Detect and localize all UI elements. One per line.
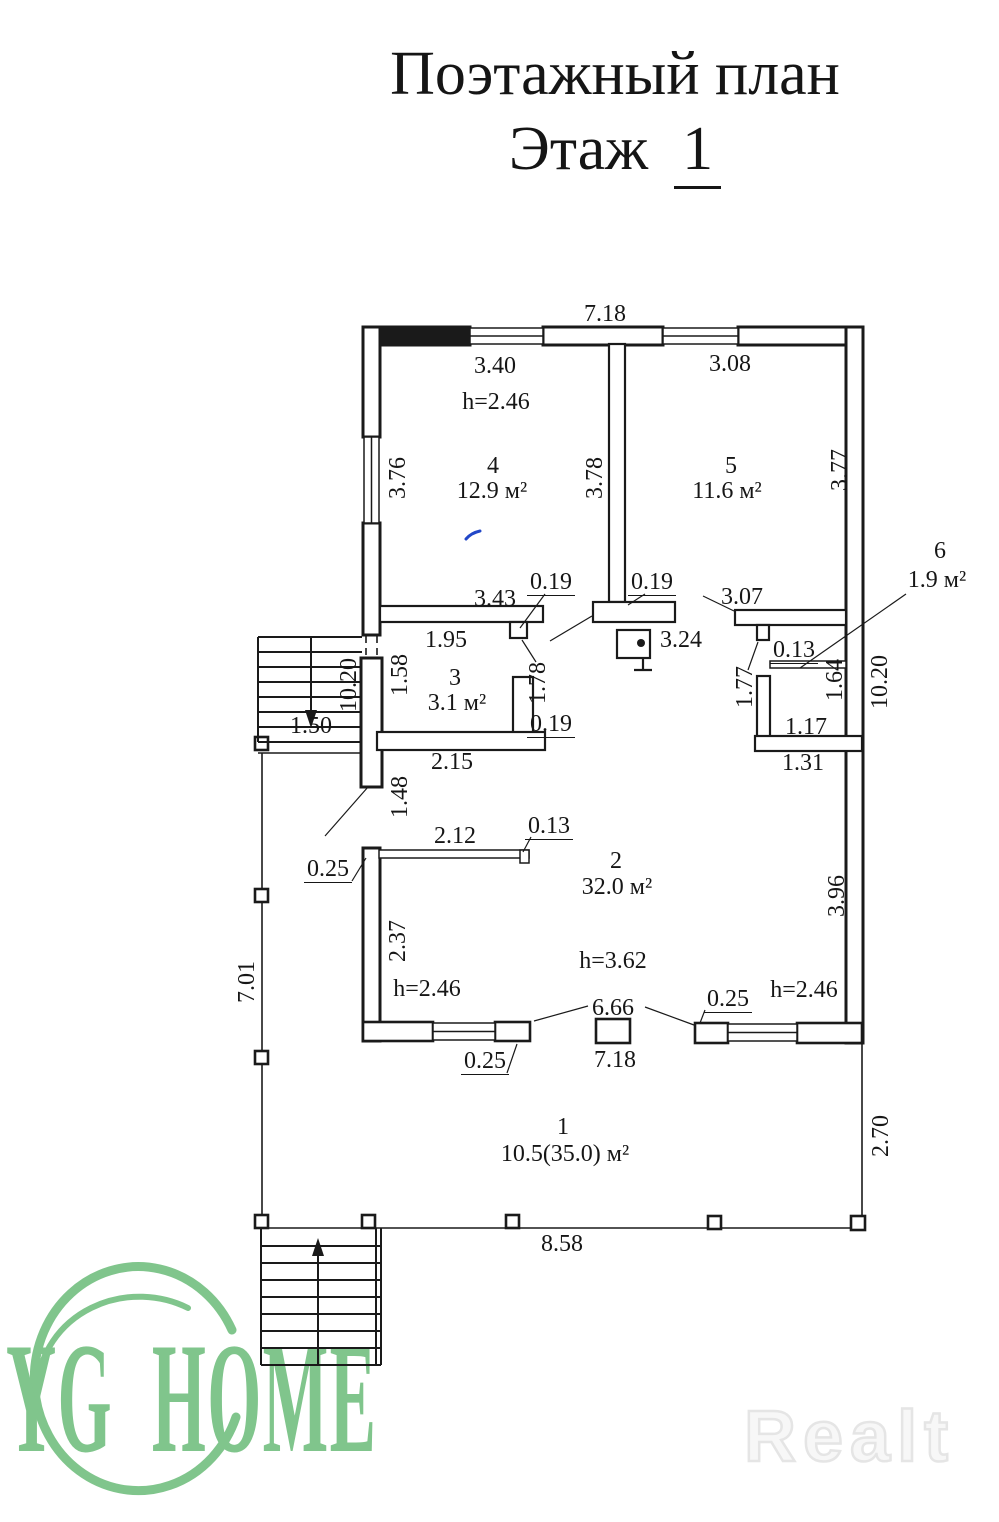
- dimension-label: 3.78: [583, 457, 607, 499]
- dimension-label: 3.24: [660, 628, 702, 652]
- dimension-label: 2.70: [869, 1115, 893, 1157]
- room-5-area: 11.6 м²: [692, 479, 762, 503]
- dimension-label: 6.66: [592, 996, 634, 1020]
- room-1-area: 10.5(35.0) м²: [501, 1142, 629, 1166]
- dimension-label: 1.48: [388, 776, 412, 818]
- dimension-label: 2.37: [386, 920, 410, 962]
- dimension-label: 0.19: [527, 570, 575, 596]
- room-3-number: 3: [449, 666, 461, 690]
- ceiling-height-room2-right: h=2.46: [770, 978, 838, 1002]
- dimension-label: 1.31: [782, 751, 824, 775]
- dimension-label: 3.08: [709, 352, 751, 376]
- room-2-area: 32.0 м²: [582, 875, 652, 899]
- floor-number: 1: [674, 113, 721, 189]
- dimension-label: 7.01: [235, 961, 259, 1003]
- dimension-label: 1.77: [733, 666, 757, 708]
- room-2-number: 2: [610, 849, 622, 873]
- dimension-label: 10.20: [868, 655, 892, 709]
- dimension-label: 1.64: [823, 659, 847, 701]
- dimension-label: 1.95: [425, 628, 467, 652]
- dimension-label: 8.58: [541, 1232, 583, 1256]
- dimension-label: 3.43: [474, 587, 516, 611]
- room-3-area: 3.1 м²: [428, 691, 486, 715]
- dimension-label: 0.25: [704, 987, 752, 1013]
- dimension-label: 0.25: [304, 857, 352, 883]
- dimension-label: 0.13: [770, 638, 818, 664]
- dimension-label: 3.40: [474, 354, 516, 378]
- dimension-label: 3.77: [828, 449, 852, 491]
- dimension-label: 1.58: [388, 654, 412, 696]
- dimension-label: 2.12: [434, 824, 476, 848]
- ceiling-height-room2-left: h=2.46: [393, 977, 461, 1001]
- floor-word: Этаж: [509, 115, 648, 183]
- dimension-label: 0.13: [525, 814, 573, 840]
- room-6-number: 6: [934, 539, 946, 563]
- dimension-label: 1.50: [290, 714, 332, 738]
- title-line2: Этаж1: [240, 113, 990, 189]
- title-line1: Поэтажный план: [240, 38, 990, 111]
- dimension-label: 10.20: [337, 658, 361, 712]
- ceiling-height-room4: h=2.46: [462, 390, 530, 414]
- page-title: Поэтажный план Этаж1: [240, 38, 990, 189]
- ceiling-height-room2: h=3.62: [579, 949, 647, 973]
- dimension-label: 0.25: [461, 1049, 509, 1075]
- dimension-label: 0.19: [628, 570, 676, 596]
- dimension-label: 7.18: [594, 1048, 636, 1072]
- dimension-label: 1.78: [526, 662, 550, 704]
- dimension-label: 3.96: [825, 875, 849, 917]
- room-5-number: 5: [725, 454, 737, 478]
- dimension-label: 3.76: [386, 457, 410, 499]
- room-4-number: 4: [487, 454, 499, 478]
- room-6-area: 1.9 м²: [908, 568, 966, 592]
- dimension-labels-layer: 7.183.403.08h=2.46412.9 м²511.6 м²3.763.…: [0, 0, 999, 1500]
- dimension-label: 3.07: [721, 585, 763, 609]
- room-1-number: 1: [557, 1115, 569, 1139]
- dimension-label: 2.15: [431, 750, 473, 774]
- dimension-label: 7.18: [584, 302, 626, 326]
- room-4-area: 12.9 м²: [457, 479, 527, 503]
- dimension-label: 1.17: [785, 715, 827, 739]
- dimension-label: 0.19: [527, 712, 575, 738]
